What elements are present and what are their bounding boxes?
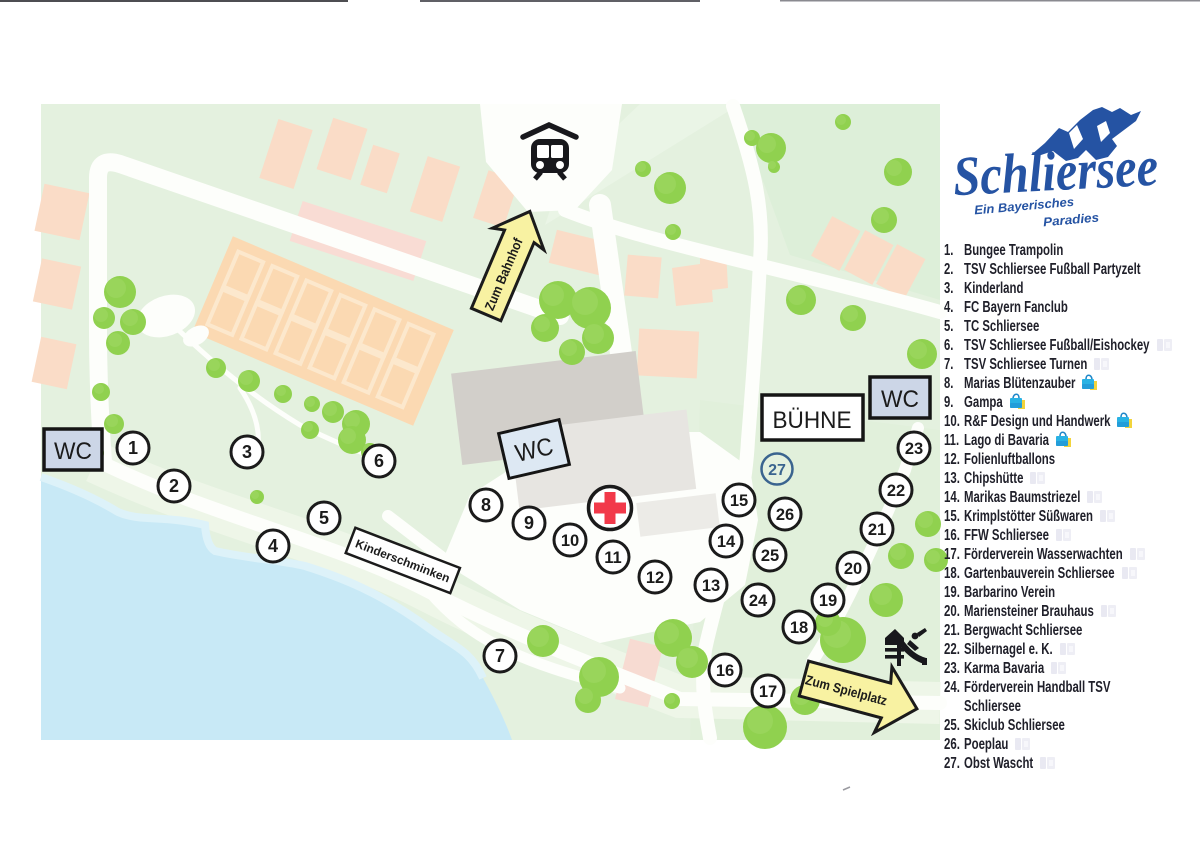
svg-text:Karma Bavaria: Karma Bavaria — [964, 660, 1044, 677]
svg-text:Gartenbauverein Schliersee: Gartenbauverein Schliersee — [964, 565, 1115, 582]
svg-text:10: 10 — [561, 532, 579, 550]
svg-text:2: 2 — [169, 476, 179, 496]
svg-text:13: 13 — [702, 577, 720, 595]
svg-text:3: 3 — [242, 442, 252, 462]
svg-text:25: 25 — [761, 547, 779, 565]
svg-text:8.: 8. — [944, 375, 953, 392]
svg-text:FC Bayern Fanclub: FC Bayern Fanclub — [964, 299, 1068, 316]
svg-text:21: 21 — [868, 521, 886, 539]
svg-text:12: 12 — [646, 569, 664, 587]
svg-text:WC: WC — [54, 438, 92, 465]
svg-text:9: 9 — [524, 513, 534, 533]
svg-text:Förderverein Wasserwachten: Förderverein Wasserwachten — [964, 546, 1123, 563]
svg-text:15: 15 — [730, 492, 748, 510]
svg-text:Poeplau: Poeplau — [964, 736, 1008, 753]
svg-text:3.: 3. — [944, 280, 953, 297]
svg-text:27.: 27. — [944, 755, 960, 772]
svg-text:TC Schliersee: TC Schliersee — [964, 318, 1040, 335]
svg-text:14: 14 — [717, 533, 736, 551]
svg-text:17.: 17. — [944, 546, 960, 563]
svg-text:18.: 18. — [944, 565, 960, 582]
svg-text:21.: 21. — [944, 622, 960, 639]
svg-text:Obst Wascht: Obst Wascht — [964, 755, 1033, 772]
svg-text:TSV Schliersee Turnen: TSV Schliersee Turnen — [964, 356, 1087, 373]
svg-text:7: 7 — [495, 646, 505, 666]
svg-text:25.: 25. — [944, 717, 960, 734]
svg-text:14.: 14. — [944, 489, 960, 506]
svg-text:12.: 12. — [944, 451, 960, 468]
svg-text:16: 16 — [716, 662, 734, 680]
svg-text:17: 17 — [759, 683, 777, 701]
svg-text:Kinderland: Kinderland — [964, 280, 1023, 297]
svg-text:23: 23 — [905, 440, 923, 458]
svg-text:Folienluftballons: Folienluftballons — [964, 451, 1055, 468]
svg-text:BÜHNE: BÜHNE — [773, 407, 852, 434]
svg-text:13.: 13. — [944, 470, 960, 487]
svg-text:Krimplstötter Süßwaren: Krimplstötter Süßwaren — [964, 508, 1093, 525]
svg-text:24: 24 — [749, 592, 768, 610]
svg-text:20.: 20. — [944, 603, 960, 620]
svg-text:6: 6 — [374, 451, 384, 471]
svg-text:6.: 6. — [944, 337, 953, 354]
svg-text:15.: 15. — [944, 508, 960, 525]
svg-text:Marias Blütenzauber: Marias Blütenzauber — [964, 375, 1076, 392]
svg-text:7.: 7. — [944, 356, 953, 373]
svg-text:Mariensteiner Brauhaus: Mariensteiner Brauhaus — [964, 603, 1094, 620]
svg-text:22.: 22. — [944, 641, 960, 658]
svg-text:Chipshütte: Chipshütte — [964, 470, 1024, 487]
svg-text:Barbarino Verein: Barbarino Verein — [964, 584, 1055, 601]
svg-text:4: 4 — [268, 536, 278, 556]
svg-text:Bergwacht Schliersee: Bergwacht Schliersee — [964, 622, 1083, 639]
svg-text:TSV Schliersee Fußball/Eishock: TSV Schliersee Fußball/Eishockey — [964, 337, 1150, 354]
svg-text:1: 1 — [128, 438, 138, 458]
svg-text:Marikas Baumstriezel: Marikas Baumstriezel — [964, 489, 1080, 506]
svg-text:20: 20 — [844, 560, 862, 578]
svg-text:8: 8 — [481, 495, 491, 515]
svg-text:Gampa: Gampa — [964, 394, 1003, 411]
svg-text:Schliersee: Schliersee — [964, 698, 1021, 715]
svg-text:5: 5 — [319, 508, 329, 528]
svg-text:22: 22 — [887, 482, 905, 500]
svg-text:Lago di Bavaria: Lago di Bavaria — [964, 432, 1049, 449]
svg-text:TSV Schliersee Fußball Partyze: TSV Schliersee Fußball Partyzelt — [964, 261, 1141, 278]
svg-text:19.: 19. — [944, 584, 960, 601]
svg-text:16.: 16. — [944, 527, 960, 544]
svg-text:1.: 1. — [944, 242, 953, 259]
svg-text:Silbernagel e. K.: Silbernagel e. K. — [964, 641, 1053, 658]
svg-text:23.: 23. — [944, 660, 960, 677]
svg-text:27: 27 — [768, 462, 786, 479]
svg-text:4.: 4. — [944, 299, 953, 316]
svg-text:WC: WC — [881, 386, 919, 413]
svg-text:Förderverein Handball TSV: Förderverein Handball TSV — [964, 679, 1111, 696]
svg-text:10.: 10. — [944, 413, 960, 430]
svg-text:26.: 26. — [944, 736, 960, 753]
svg-text:FFW Schliersee: FFW Schliersee — [964, 527, 1049, 544]
svg-text:9.: 9. — [944, 394, 953, 411]
svg-text:26: 26 — [776, 506, 794, 524]
svg-text:11.: 11. — [944, 432, 959, 449]
svg-text:Bungee Trampolin: Bungee Trampolin — [964, 242, 1063, 259]
svg-text:19: 19 — [819, 592, 837, 610]
svg-text:11: 11 — [604, 549, 621, 567]
svg-text:Skiclub Schliersee: Skiclub Schliersee — [964, 717, 1065, 734]
svg-text:18: 18 — [790, 619, 808, 637]
svg-text:24.: 24. — [944, 679, 960, 696]
svg-text:R&F Design und Handwerk: R&F Design und Handwerk — [964, 413, 1111, 430]
svg-text:5.: 5. — [944, 318, 953, 335]
svg-text:2.: 2. — [944, 261, 953, 278]
